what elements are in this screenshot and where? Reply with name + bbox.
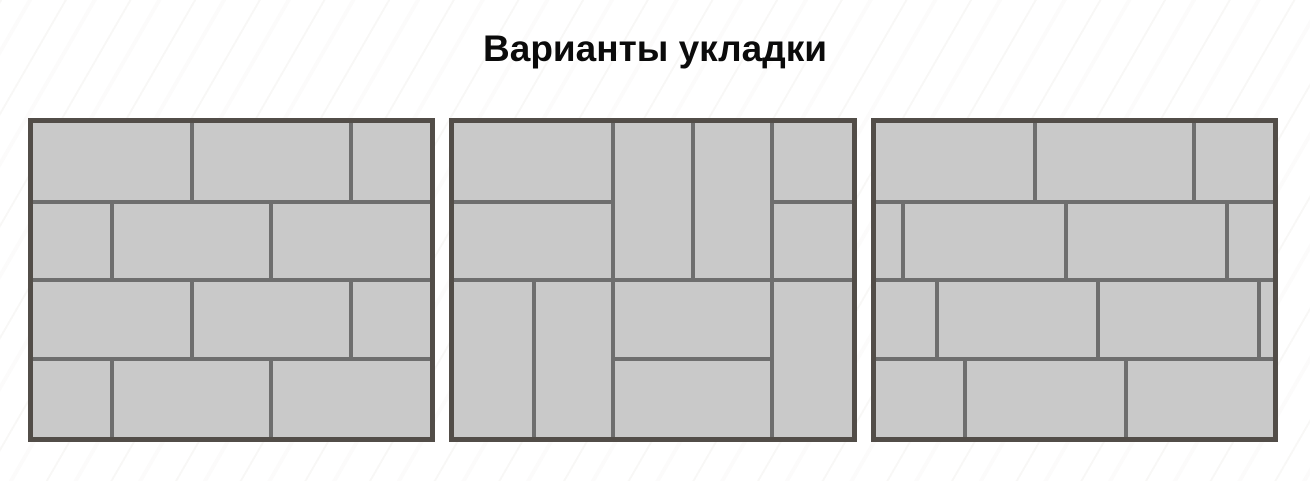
paver-brick [273, 361, 430, 438]
paver-brick [353, 282, 430, 357]
laying-pattern-half-offset [28, 118, 435, 442]
paver-brick [876, 282, 936, 357]
paver-brick [114, 361, 269, 438]
paver-brick [33, 204, 110, 279]
paver-brick [615, 282, 770, 357]
paver-brick [33, 282, 190, 357]
paver-brick [353, 123, 430, 200]
paver-brick [876, 123, 1033, 200]
paver-brick [454, 204, 611, 279]
paver-brick [876, 204, 902, 279]
paver-brick [615, 123, 690, 278]
paver-brick [454, 282, 531, 437]
paver-brick [695, 123, 770, 278]
paver-brick [774, 282, 851, 437]
paver-brick [454, 123, 611, 200]
paver-brick [939, 282, 1096, 357]
paver-brick [1037, 123, 1192, 200]
paver-brick [905, 204, 1064, 279]
paver-brick [194, 123, 349, 200]
paver-brick [33, 123, 190, 200]
laying-pattern-pinwheel [449, 118, 856, 442]
paver-brick [774, 204, 851, 279]
paver-brick [774, 123, 851, 200]
paver-brick [1068, 204, 1225, 279]
figure-title: Варианты укладки [0, 28, 1310, 71]
paver-brick [273, 204, 430, 279]
paver-brick [1229, 204, 1273, 279]
laying-pattern-stepped-offset [871, 118, 1278, 442]
paver-brick [1261, 282, 1273, 357]
paver-brick [194, 282, 349, 357]
paver-brick [114, 204, 269, 279]
paver-brick [615, 361, 770, 438]
paver-brick [1128, 361, 1273, 438]
laying-patterns-row [28, 118, 1278, 442]
paver-brick [33, 361, 110, 438]
paver-brick [1196, 123, 1273, 200]
paver-brick [536, 282, 611, 437]
paver-brick [876, 361, 963, 438]
paver-brick [1100, 282, 1257, 357]
paver-brick [967, 361, 1124, 438]
